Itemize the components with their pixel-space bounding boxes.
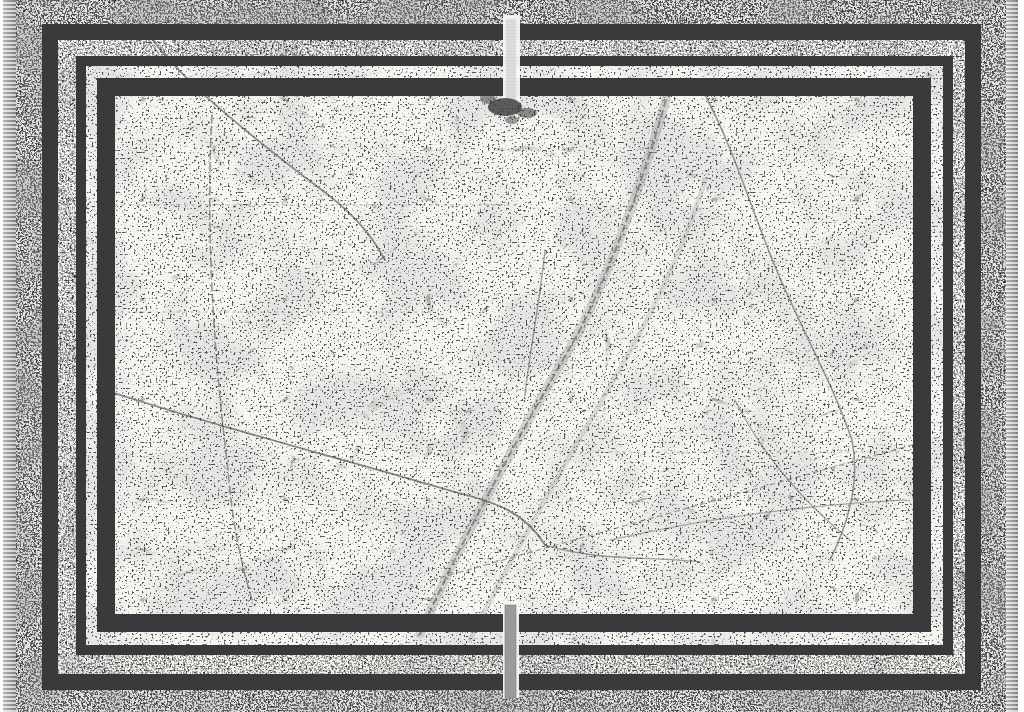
rug-fringe-left <box>3 0 16 712</box>
rug-product-photo <box>0 0 1024 712</box>
rug-center-slit-top <box>503 15 520 103</box>
rug-fringe-right <box>1006 0 1018 712</box>
rug-center-slit-bottom <box>503 601 519 698</box>
backdrop-edge-right <box>1018 0 1024 712</box>
rug-artwork <box>0 0 1024 712</box>
